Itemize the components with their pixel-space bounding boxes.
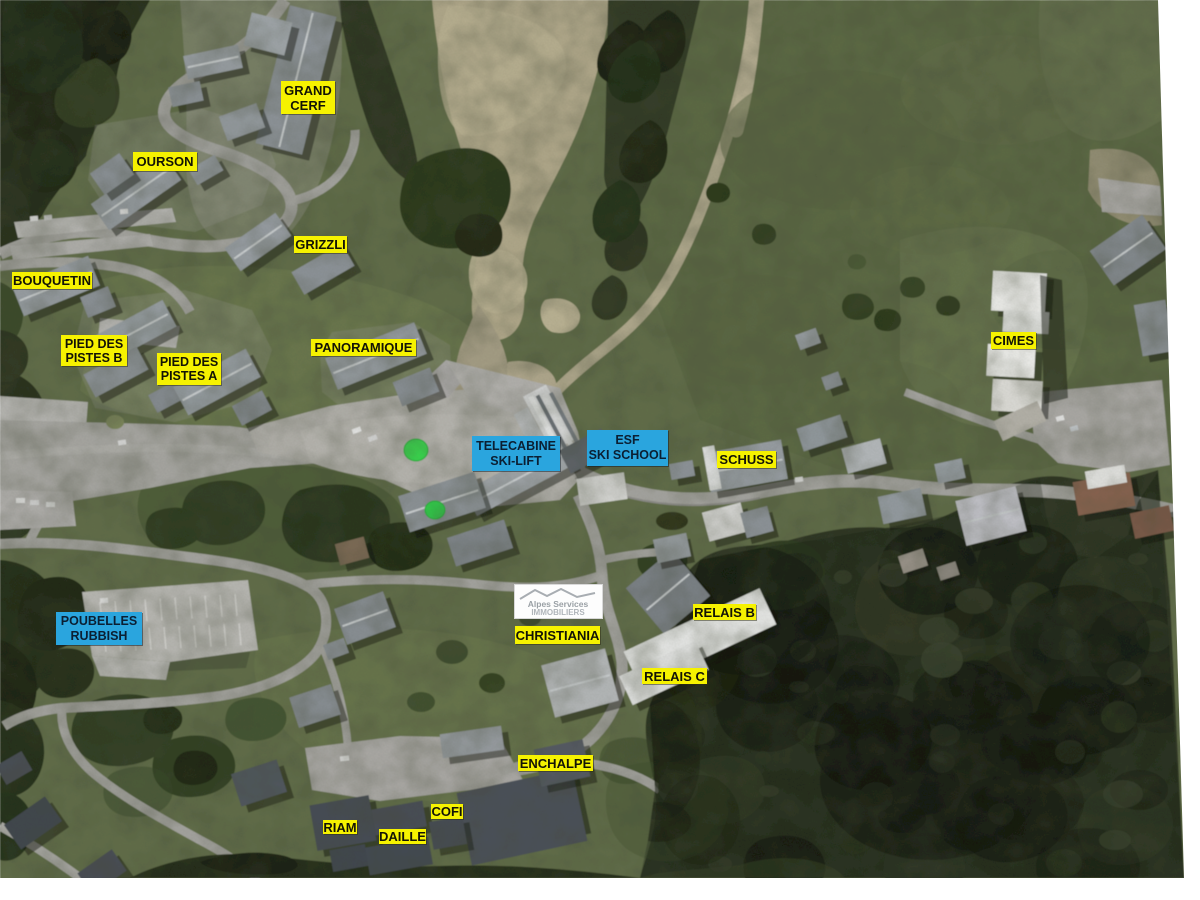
svg-text:IMMOBILIERS: IMMOBILIERS [531, 608, 585, 617]
